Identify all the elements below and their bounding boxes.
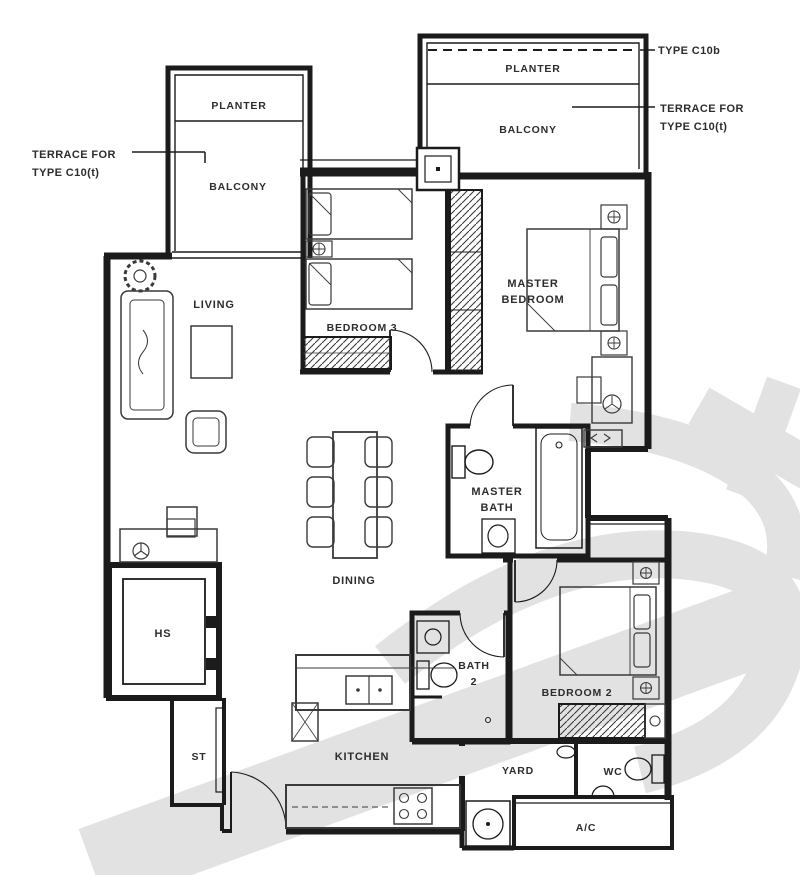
terrace-left-label-2: TYPE C10(t) — [32, 167, 99, 179]
type-ref-label: TYPE C10b — [658, 45, 720, 57]
pillow — [309, 263, 331, 305]
hs-door-hinge-bottom — [206, 658, 218, 670]
room-label-hs: HS — [155, 628, 172, 640]
room-label-st: ST — [191, 751, 206, 763]
room-label-master-bath-2: BATH — [481, 502, 514, 514]
room-label-bedroom2: BEDROOM 2 — [542, 687, 613, 699]
dining-chair — [307, 477, 334, 507]
dining-chair — [365, 477, 392, 507]
dining-chair — [307, 517, 334, 547]
room-label-master-bedroom-2: BEDROOM — [501, 294, 564, 306]
side-cabinet — [645, 704, 665, 738]
yard-sink-icon — [557, 746, 575, 758]
single-bed — [306, 259, 412, 309]
sofa — [121, 291, 173, 419]
wardrobe — [450, 190, 482, 372]
tv — [167, 507, 197, 536]
master-bedroom-furniture — [450, 190, 632, 447]
single-bed — [306, 189, 412, 239]
plant-icon — [125, 261, 155, 291]
burner — [418, 810, 427, 819]
room-label-master-bedroom-1: MASTER — [507, 278, 558, 290]
bath2-toilet-icon — [431, 663, 457, 687]
bathtub — [536, 428, 582, 548]
room-label-bedroom3: BEDROOM 3 — [327, 322, 398, 334]
sink-counter — [482, 519, 515, 553]
room-label-balcony-left: BALCONY — [209, 181, 267, 193]
master-bath-room — [448, 385, 588, 556]
dining-furniture — [307, 432, 392, 558]
room-label-wc: WC — [603, 766, 622, 778]
room-label-living: LIVING — [193, 299, 234, 311]
dining-chair — [307, 437, 334, 467]
bedroom3-door-arc — [390, 330, 432, 372]
toilet-icon — [465, 450, 493, 474]
room-label-yard: YARD — [502, 765, 534, 777]
burner — [400, 810, 409, 819]
pillow — [601, 237, 617, 277]
terrace-right-label-1: TERRACE FOR — [660, 103, 744, 115]
terrace-left — [132, 68, 310, 258]
sink-icon — [488, 525, 508, 547]
tub-drain — [556, 442, 562, 448]
column — [417, 148, 459, 190]
master-bath-door-arc — [470, 385, 513, 426]
room-label-bath2-1: BATH — [458, 660, 490, 672]
room-label-balcony-right: BALCONY — [499, 124, 557, 136]
coffee-table — [191, 326, 232, 378]
room-label-planter-right: PLANTER — [505, 63, 560, 75]
room-label-planter-left: PLANTER — [211, 100, 266, 112]
toilet-tank — [452, 446, 465, 478]
terrace-right-label-2: TYPE C10(t) — [660, 121, 727, 133]
wardrobe — [559, 704, 645, 738]
terrace-left-label-1: TERRACE FOR — [32, 149, 116, 161]
dining-chair — [365, 517, 392, 547]
room-label-master-bath-1: MASTER — [471, 486, 522, 498]
room-label-ac: A/C — [576, 822, 596, 834]
burner — [418, 794, 427, 803]
floor-plan-svg: TYPE C10b TERRACE FOR TYPE C10(t) TERRAC… — [0, 0, 800, 875]
room-label-dining: DINING — [332, 575, 375, 587]
room-label-kitchen: KITCHEN — [335, 751, 390, 763]
dining-chair — [365, 437, 392, 467]
bedroom3-furniture — [303, 189, 412, 369]
cabinet — [167, 519, 195, 537]
balcony-sliding-door — [172, 252, 306, 258]
watermark — [79, 377, 800, 875]
floor-plan-page: TYPE C10b TERRACE FOR TYPE C10(t) TERRAC… — [0, 0, 800, 875]
hs-door-hinge-top — [206, 616, 218, 628]
dining-table — [333, 432, 377, 558]
stool — [577, 377, 601, 403]
pillow — [601, 285, 617, 325]
armchair — [186, 411, 226, 453]
room-label-bath2-2: 2 — [471, 676, 478, 688]
